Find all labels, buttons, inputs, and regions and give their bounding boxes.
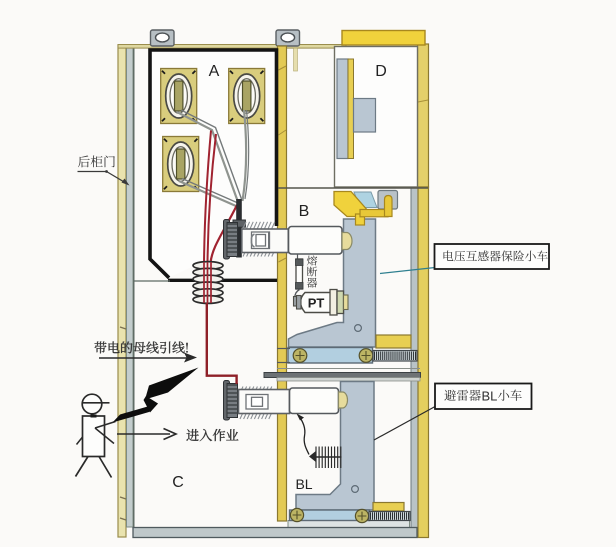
svg-text:D: D (375, 63, 387, 80)
svg-text:PT: PT (308, 296, 325, 311)
svg-text:BL: BL (295, 476, 312, 492)
svg-text:A: A (209, 63, 220, 80)
svg-text:C: C (172, 474, 184, 491)
svg-text:B: B (299, 203, 310, 220)
svg-text:BL: BL (482, 389, 498, 404)
